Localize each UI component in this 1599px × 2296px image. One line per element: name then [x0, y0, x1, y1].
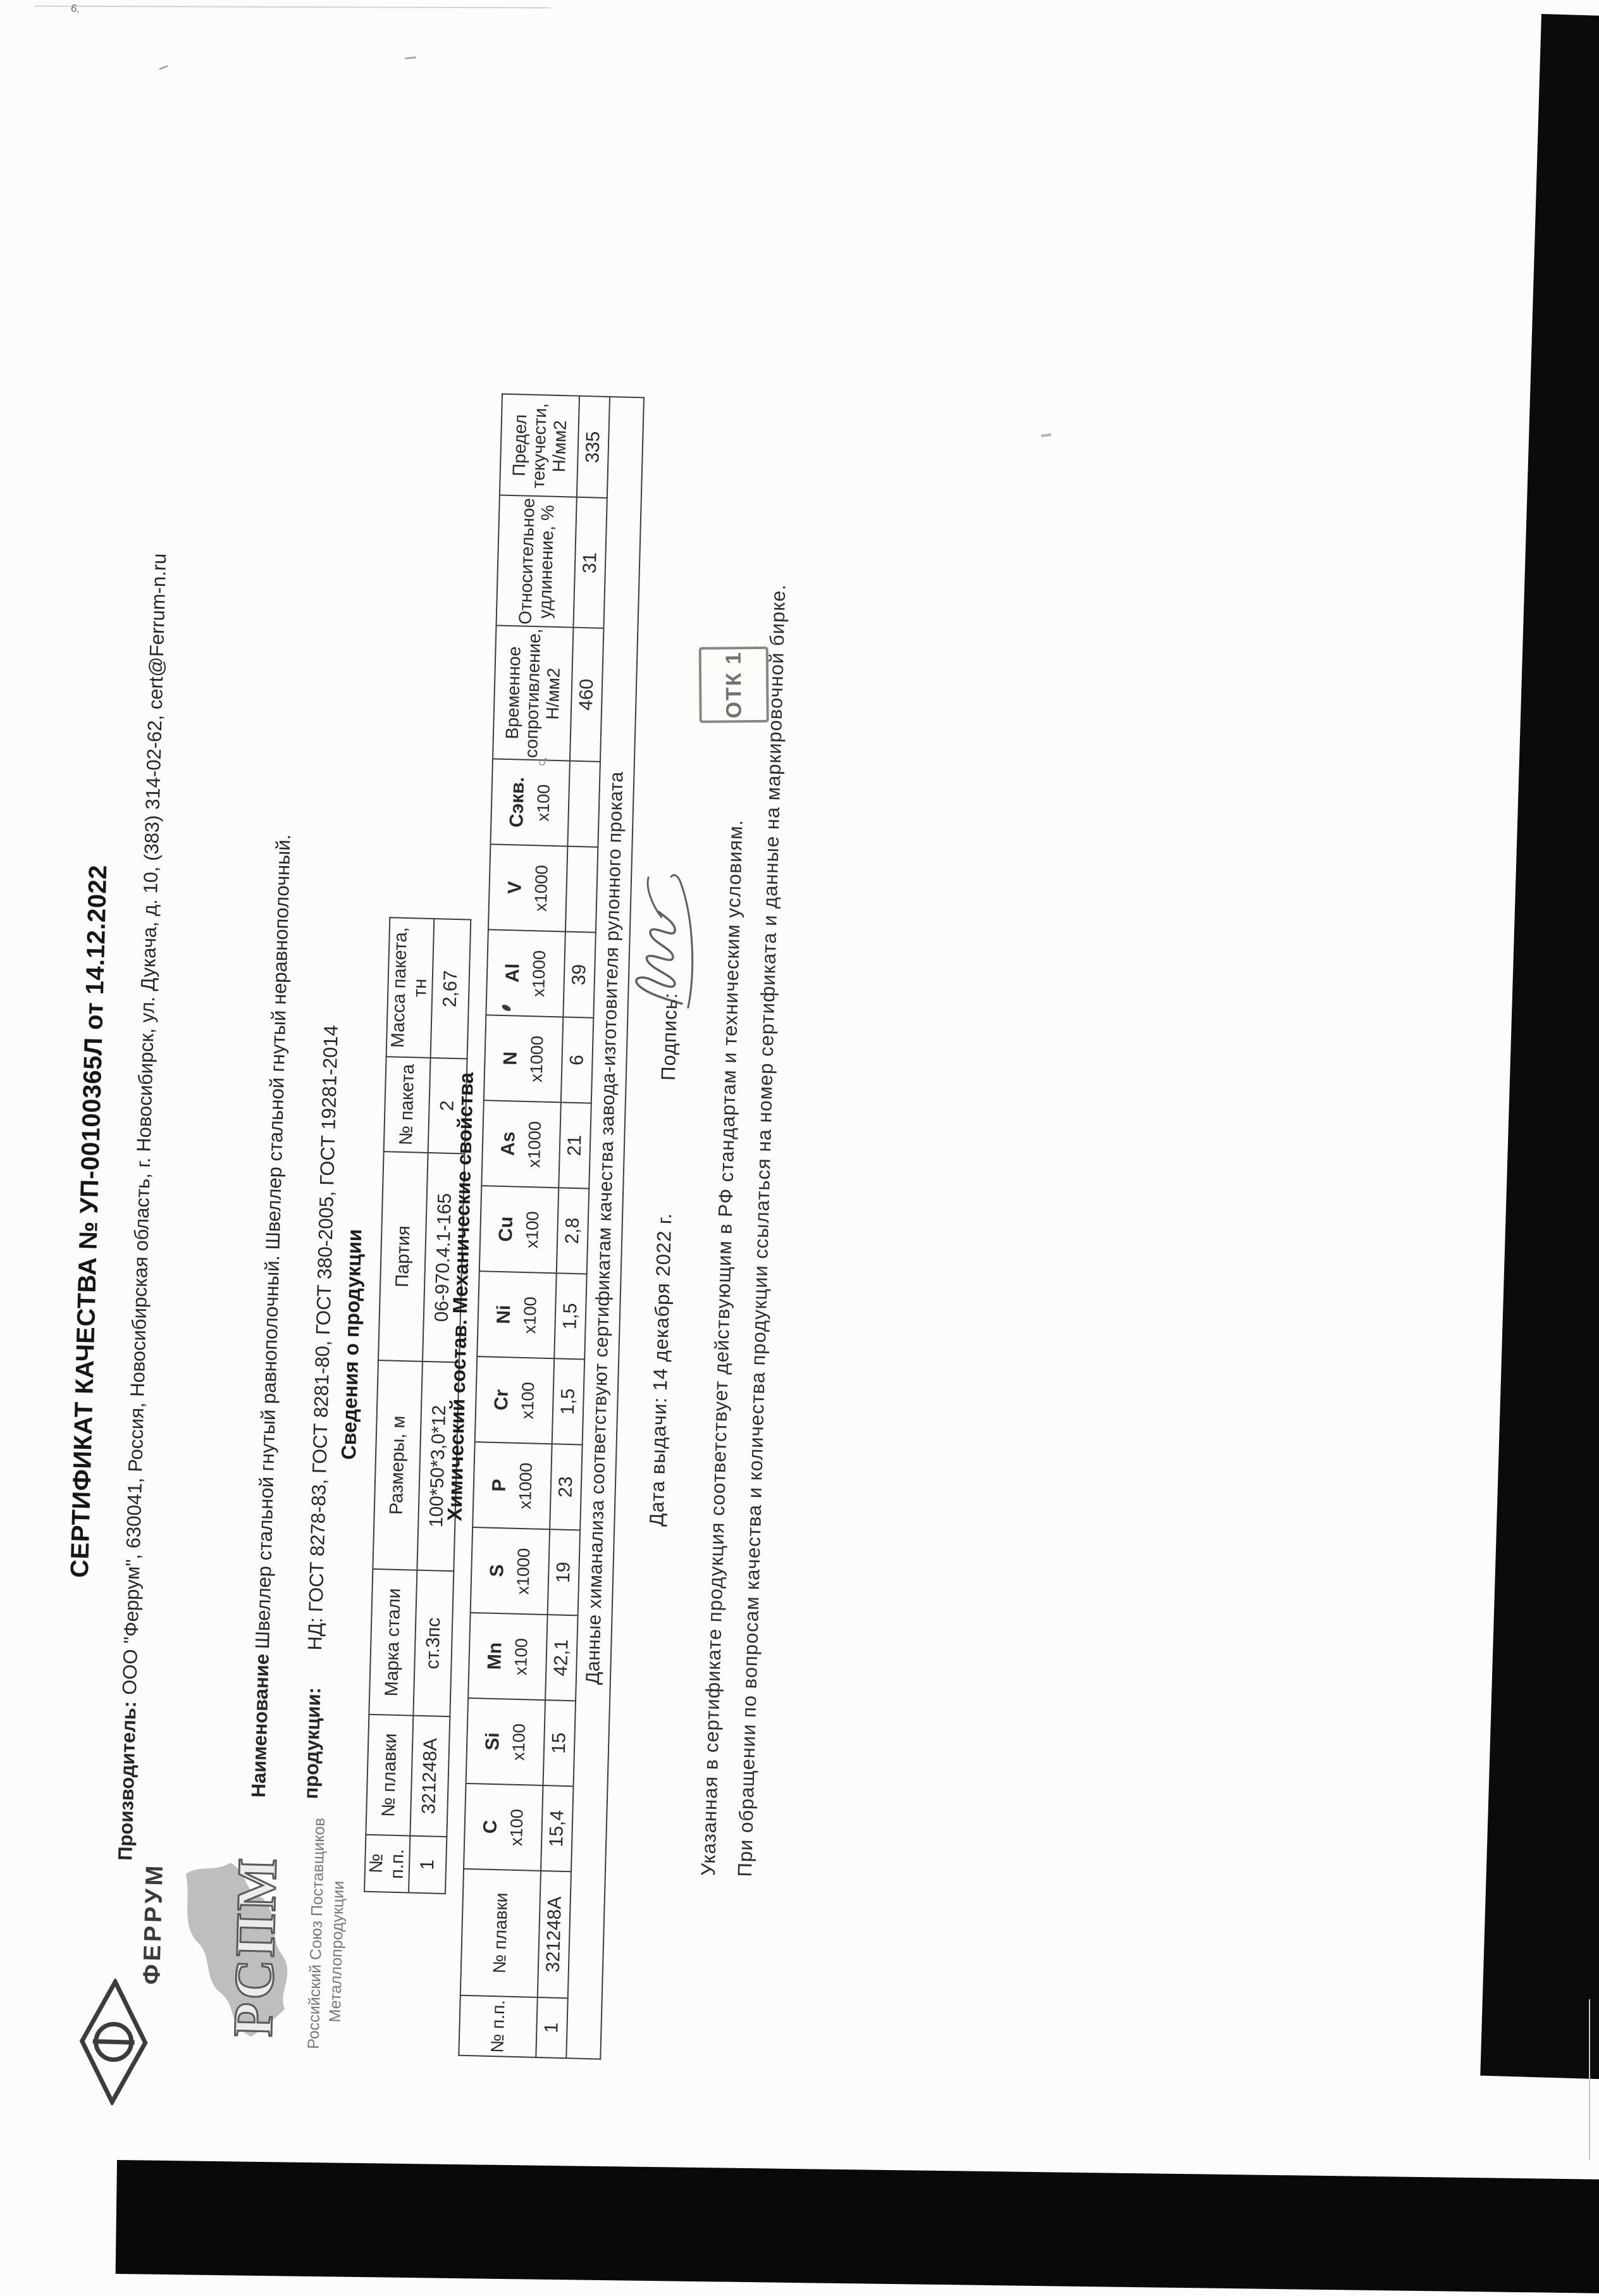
chem-table-col-header: Cuх100: [479, 1186, 559, 1273]
otk-stamp: ОТК 1: [699, 647, 769, 723]
scanned-certificate-page: СЕРТИФИКАТ КАЧЕСТВА № УП-00100365Л от 14…: [0, 0, 1599, 2243]
chem-table-col-header: Сэкв.х100: [490, 759, 569, 846]
certificate-title: СЕРТИФИКАТ КАЧЕСТВА № УП-00100365Л от 14…: [66, 865, 113, 1579]
chem-table-col-header: Временное сопротивление, Н/мм2: [493, 626, 573, 761]
chem-table-cell: 1: [536, 1997, 567, 2058]
info-table-col-header: Масса пакета, тн: [386, 917, 435, 1058]
info-table-col-header: Марка стали: [369, 1569, 417, 1716]
chem-table-cell: 23: [550, 1444, 583, 1530]
union-text-line1: Российский Союз Поставщиков: [305, 1852, 328, 2049]
product-name-label-line2: продукции:: [300, 1687, 326, 1799]
chemical-mechanical-table: № п.п.№ плавкиCх100Siх100Mnх100Sх1000Pх1…: [458, 394, 645, 2060]
chem-table-cell: [565, 847, 598, 933]
chem-table-col-header: Nх1000: [484, 1015, 563, 1102]
info-table-cell: ст.3пс: [413, 1570, 454, 1716]
chem-table-cell: [567, 761, 600, 847]
chem-table-col-header: Alх1000: [486, 929, 565, 1017]
ferrum-logo-text: ФЕРРУМ: [139, 1862, 169, 1985]
issue-date-line: Дата выдачи: 14 декабря 2022 г.: [645, 1212, 676, 1527]
chem-table-col-header: Mnх100: [468, 1613, 547, 1700]
info-table-col-header: Размеры, м: [373, 1360, 423, 1570]
product-name-value: Швеллер стальной гнутый равнополочный. Ш…: [251, 834, 295, 1649]
info-table-cell: 1: [409, 1836, 447, 1894]
signature-scribble: [624, 866, 703, 1013]
footer-line-2: При обращении по вопросам качества и кол…: [734, 584, 790, 1877]
chem-table-col-header: Предел текучести, Н/мм2: [500, 394, 579, 497]
chem-table-col-header: Siх100: [466, 1698, 545, 1785]
chem-table-col-header: Pх1000: [472, 1442, 552, 1529]
info-table-cell: 2,67: [431, 919, 471, 1058]
chem-table-col-header: Относительное удлинение, %: [496, 495, 576, 628]
info-table-col-header: № плавки: [366, 1715, 413, 1836]
chem-table-cell: 15: [543, 1700, 576, 1786]
info-table-col-header: Партия: [378, 1151, 428, 1362]
product-name-label-line1: Наименование: [247, 1653, 274, 1797]
chem-table-col-header: Niх100: [477, 1271, 556, 1358]
chem-table-col-header: № плавки: [460, 1869, 541, 1997]
ferrum-logo-diamond-icon: [77, 1978, 150, 2106]
info-table-col-header: № п.п.: [364, 1835, 410, 1893]
info-section-title: Сведения о продукции: [335, 1142, 369, 1548]
chem-table-cell: 321248А: [538, 1871, 571, 1998]
chem-table-cell: 6: [561, 1017, 594, 1103]
chem-table-cell: 15,4: [541, 1785, 574, 1871]
chem-table-cell: 42,1: [545, 1615, 578, 1701]
chem-table-col-header: № п.п.: [459, 1995, 537, 2057]
scanner-black-strip-bottom: [116, 2160, 1599, 2296]
chem-table-cell: 1,5: [552, 1358, 585, 1444]
chem-table-cell: 335: [577, 396, 610, 498]
chem-table-col-header: Crх100: [475, 1356, 554, 1444]
rspm-logo-map-icon: РСПМ: [175, 1854, 304, 2044]
paper-edge-shadow: [1589, 1999, 1590, 2161]
union-text-line2: Металлопродукции: [325, 1853, 349, 2050]
producer-label: Производитель:: [114, 1701, 140, 1861]
nd-standards-line: НД: ГОСТ 8278-83, ГОСТ 8281-80, ГОСТ 380…: [304, 1025, 343, 1651]
chem-table-cell: 39: [563, 931, 596, 1017]
chem-table-col-header: Cх100: [464, 1784, 543, 1871]
chem-table-cell: 2,8: [557, 1188, 590, 1274]
rspm-logo-text: РСПМ: [223, 1855, 288, 2037]
chem-table-cell: 31: [573, 497, 607, 628]
info-table-cell: 321248А: [410, 1716, 450, 1837]
chem-table-col-header: Sх1000: [471, 1527, 550, 1615]
producer-value: ООО "Феррум", 630041, Россия, Новосибирс…: [118, 553, 170, 1695]
chem-table-cell: 1,5: [554, 1273, 587, 1359]
chem-table-col-header: Vх1000: [488, 844, 567, 931]
info-table-col-header: № пакета: [384, 1057, 431, 1153]
chem-table-cell: 460: [570, 628, 603, 762]
chem-table-cell: 19: [548, 1529, 581, 1615]
producer-line: Производитель:ООО "Феррум", 630041, Росс…: [114, 547, 171, 1861]
chem-table-col-header: Asх1000: [481, 1100, 560, 1188]
chem-table-cell: 21: [559, 1102, 591, 1188]
